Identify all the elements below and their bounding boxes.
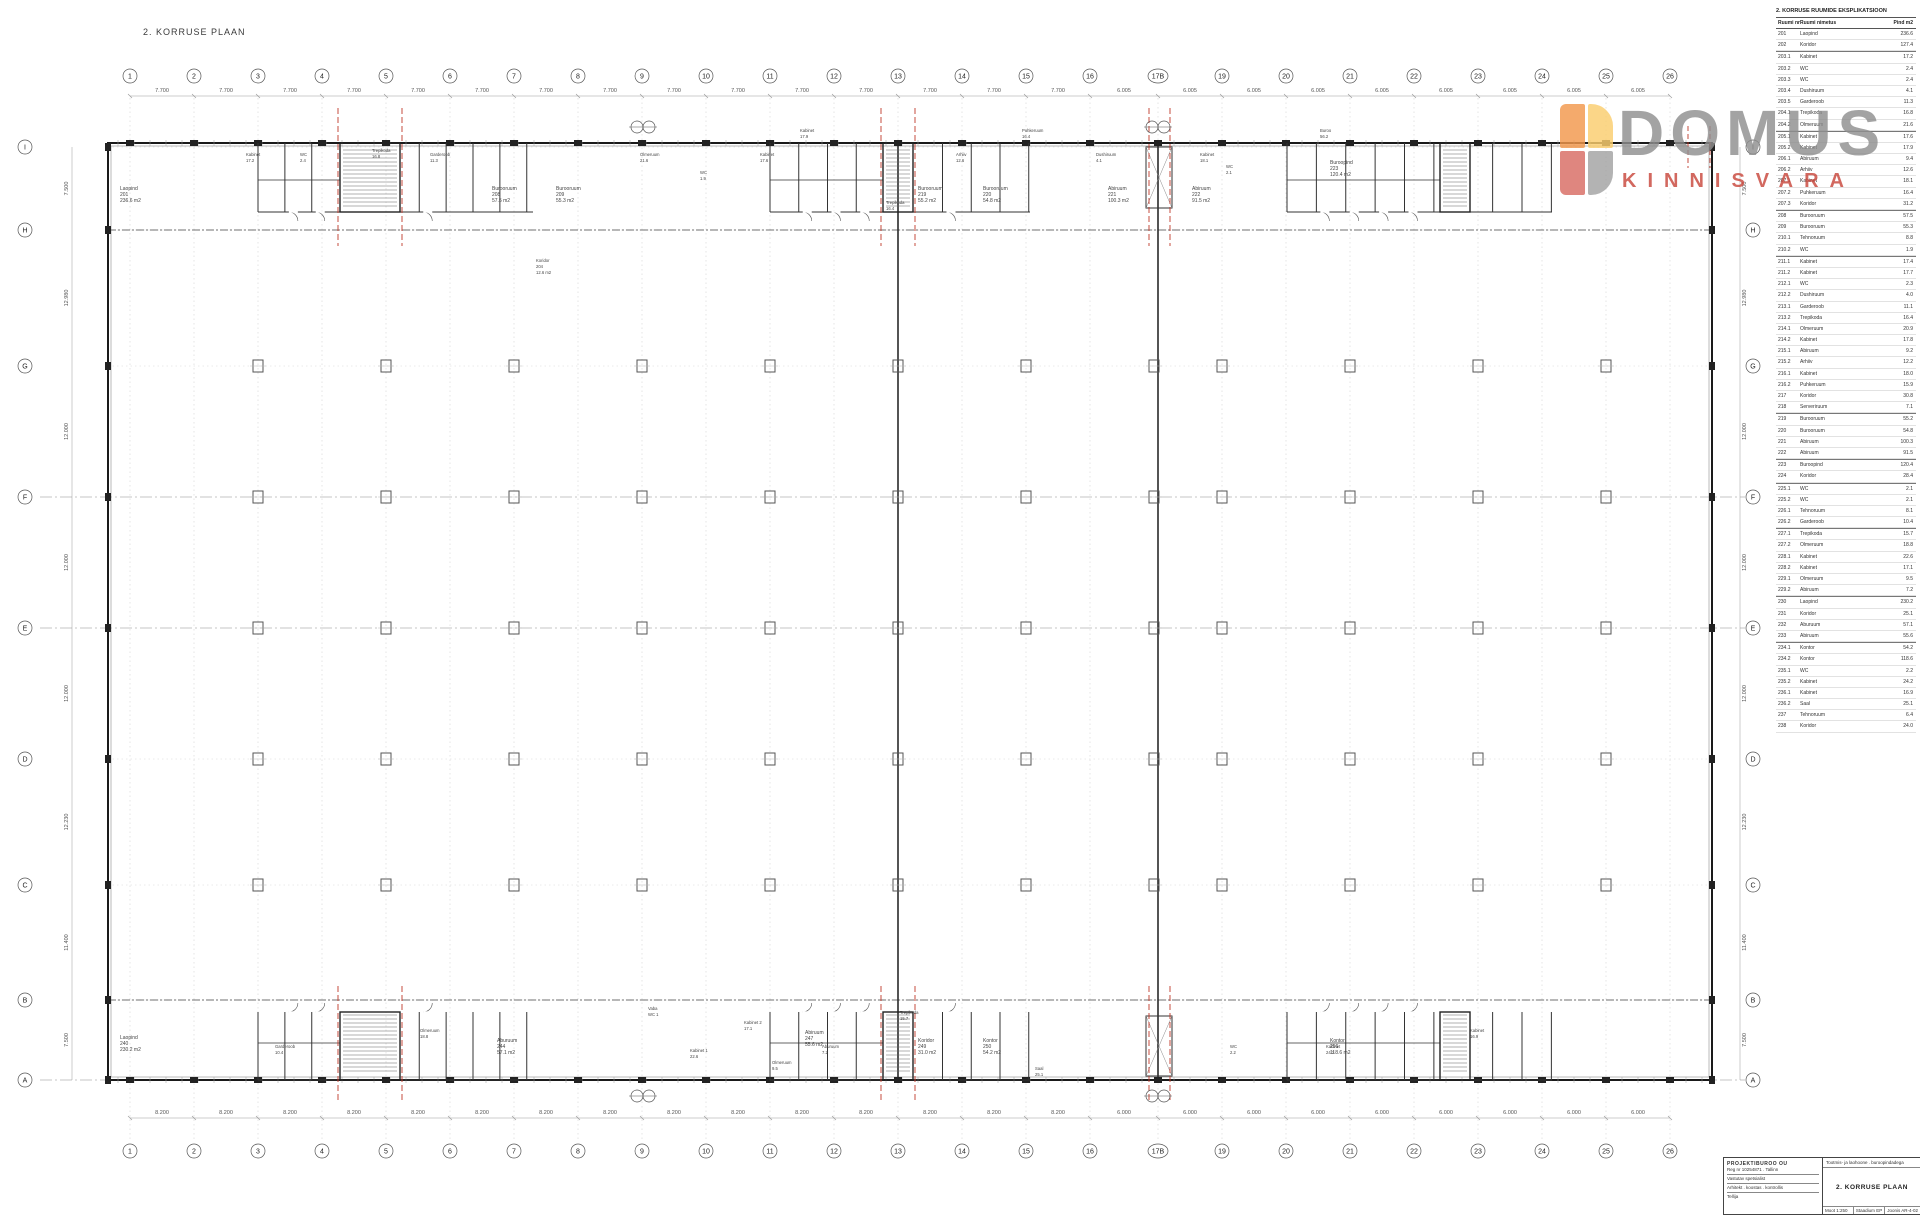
room-label-small: 16.8 — [372, 154, 380, 160]
room-label: Buroopind223120.4 m2 — [1330, 160, 1353, 178]
svg-text:8.200: 8.200 — [987, 1110, 1001, 1116]
svg-text:3: 3 — [256, 1148, 260, 1155]
drawing-title: 2. KORRUSE PLAAN — [1823, 1168, 1920, 1206]
table-row: 214.1Olmeruum20.9 — [1776, 324, 1916, 335]
svg-text:F: F — [23, 494, 27, 501]
svg-text:8.200: 8.200 — [283, 1110, 297, 1116]
title-block: PROJEKTIBUROO OU Reg nr 10254871 . Talli… — [1723, 1157, 1920, 1215]
logo-quad-red — [1560, 151, 1585, 195]
stage-cell: Staadium EP — [1854, 1207, 1885, 1214]
table-row: 224Koridor28.4 — [1776, 471, 1916, 482]
table-row: 217Koridor30.8 — [1776, 391, 1916, 402]
svg-text:6.000: 6.000 — [1183, 1110, 1197, 1116]
svg-text:11: 11 — [766, 73, 773, 80]
svg-text:1: 1 — [128, 1148, 132, 1155]
svg-text:6.005: 6.005 — [1375, 88, 1389, 94]
company-sub: Reg nr 10254871 . Tallinn — [1727, 1167, 1819, 1172]
svg-text:7.700: 7.700 — [859, 88, 873, 94]
svg-text:7.500: 7.500 — [64, 1033, 70, 1047]
svg-text:17B: 17B — [1152, 1148, 1165, 1155]
svg-text:8.200: 8.200 — [1051, 1110, 1065, 1116]
logo: DOMUS KINNISVARA — [1560, 104, 1890, 204]
room-label: Koridor24931.0 m2 — [918, 1038, 936, 1056]
svg-text:7.700: 7.700 — [411, 88, 425, 94]
table-row: 228.1Kabinet22.6 — [1776, 552, 1916, 563]
table-row: 219Burooruum55.2 — [1776, 413, 1916, 425]
svg-text:14: 14 — [958, 1148, 966, 1155]
svg-text:12.000: 12.000 — [64, 685, 70, 702]
table-row: 215.2Arhiiv12.2 — [1776, 357, 1916, 368]
table-row: 222Abiruum91.5 — [1776, 448, 1916, 459]
room-label-small: 1.9 — [700, 176, 706, 182]
svg-text:24: 24 — [1538, 73, 1546, 80]
svg-text:19: 19 — [1218, 1148, 1226, 1155]
room-label-small: 16.4 — [1022, 134, 1030, 140]
room-label: Aburuum24457.1 m2 — [497, 1038, 517, 1056]
svg-text:10: 10 — [702, 73, 710, 80]
svg-text:16: 16 — [1086, 73, 1094, 80]
room-label-small: 2.1 — [1226, 170, 1232, 176]
svg-text:6.000: 6.000 — [1247, 1110, 1261, 1116]
svg-text:12.000: 12.000 — [1742, 554, 1748, 571]
svg-text:12: 12 — [830, 1148, 838, 1155]
svg-text:6.005: 6.005 — [1567, 88, 1581, 94]
title-block-footer: Moot 1:250 Staadium EP Joonis AR-4-02 — [1823, 1206, 1920, 1214]
table-row: 227.2Olmeruum18.8 — [1776, 540, 1916, 551]
table-row: 221Abiruum100.3 — [1776, 437, 1916, 448]
svg-text:6.005: 6.005 — [1117, 88, 1131, 94]
svg-text:A: A — [1751, 1077, 1756, 1084]
room-label: Laopind240230.2 m2 — [120, 1035, 141, 1053]
schedule-header: Ruumi nr Ruumi nimetus Pind m2 — [1776, 17, 1916, 29]
tb-line3: Tellija — [1727, 1192, 1819, 1199]
svg-text:13: 13 — [894, 73, 902, 80]
tb-line1: Vastutav spetsialist — [1727, 1174, 1819, 1181]
svg-text:6.005: 6.005 — [1247, 88, 1261, 94]
svg-text:12.230: 12.230 — [64, 814, 70, 831]
svg-text:24: 24 — [1538, 1148, 1546, 1155]
svg-text:7.700: 7.700 — [347, 88, 361, 94]
logo-quad-gray — [1588, 151, 1613, 195]
svg-text:8.200: 8.200 — [859, 1110, 873, 1116]
svg-text:22: 22 — [1410, 73, 1418, 80]
svg-text:7.700: 7.700 — [923, 88, 937, 94]
table-row: 234.1Kontor54.2 — [1776, 642, 1916, 654]
room-label-small: 24.2 — [1326, 1050, 1334, 1056]
svg-text:6.000: 6.000 — [1117, 1110, 1131, 1116]
wall-pilasters — [105, 140, 1715, 1084]
svg-text:B: B — [23, 997, 28, 1004]
svg-text:22: 22 — [1410, 1148, 1418, 1155]
table-row: 234.2Kontor118.6 — [1776, 654, 1916, 665]
room-label-small: 17.1 — [744, 1026, 752, 1032]
table-row: 226.1Tehnoruum8.1 — [1776, 506, 1916, 517]
svg-text:7.500: 7.500 — [1742, 1033, 1748, 1047]
sheet-cell: Joonis AR-4-02 — [1885, 1207, 1920, 1214]
svg-text:9: 9 — [640, 1148, 644, 1155]
svg-text:6.000: 6.000 — [1439, 1110, 1453, 1116]
room-label-small: 25.1 — [1035, 1072, 1043, 1078]
office-clusters — [258, 143, 1552, 1080]
svg-text:25: 25 — [1602, 1148, 1610, 1155]
svg-text:8.200: 8.200 — [347, 1110, 361, 1116]
svg-text:F: F — [1751, 494, 1755, 501]
svg-text:12.000: 12.000 — [1742, 685, 1748, 702]
svg-text:8.200: 8.200 — [923, 1110, 937, 1116]
table-row: 213.2Trepikoda16.4 — [1776, 313, 1916, 324]
schedule-header-area: Pind m2 — [1887, 20, 1916, 26]
room-label-small: 10.4 — [275, 1050, 283, 1056]
room-label-small: 18.8 — [420, 1034, 428, 1040]
svg-text:5: 5 — [384, 1148, 388, 1155]
svg-text:E: E — [23, 625, 28, 632]
svg-text:G: G — [22, 363, 27, 370]
svg-text:H: H — [1750, 227, 1755, 234]
svg-text:6: 6 — [448, 73, 452, 80]
grid-bubbles: 1122334455667788991010111112121313141415… — [18, 69, 1760, 1158]
svg-text:6.005: 6.005 — [1503, 88, 1517, 94]
svg-text:12.000: 12.000 — [1742, 423, 1748, 440]
schedule-title: 2. KORRUSE RUUMIDE EKSPLIKATSIOON — [1776, 8, 1916, 14]
svg-text:A: A — [23, 1077, 28, 1084]
logo-subtitle: KINNISVARA — [1622, 170, 1855, 193]
room-label-small: 4.1 — [1096, 158, 1102, 164]
svg-text:13: 13 — [894, 1148, 902, 1155]
svg-text:6.000: 6.000 — [1375, 1110, 1389, 1116]
svg-text:12.000: 12.000 — [64, 554, 70, 571]
svg-text:2: 2 — [192, 1148, 196, 1155]
logo-quad-yellow — [1588, 104, 1613, 148]
svg-text:11.400: 11.400 — [1742, 934, 1748, 950]
svg-text:8: 8 — [576, 73, 580, 80]
svg-text:6.000: 6.000 — [1567, 1110, 1581, 1116]
svg-text:7.700: 7.700 — [667, 88, 681, 94]
svg-text:10: 10 — [702, 1148, 710, 1155]
section-marks — [629, 121, 1172, 1102]
table-row: 229.1Olmeruum9.5 — [1776, 574, 1916, 585]
svg-text:8.200: 8.200 — [219, 1110, 233, 1116]
project-name: Tootmis- ja laohoone . buroopindadega — [1823, 1158, 1920, 1168]
title-block-company-cell: PROJEKTIBUROO OU Reg nr 10254871 . Talli… — [1724, 1158, 1823, 1214]
table-row: 202Koridor127.4 — [1776, 40, 1916, 51]
svg-text:7.700: 7.700 — [539, 88, 553, 94]
table-row: 214.2Kabinet17.8 — [1776, 335, 1916, 346]
room-label-small: 21.6 — [640, 158, 648, 164]
table-row: 203.3WC2.4 — [1776, 75, 1916, 86]
svg-text:8.200: 8.200 — [539, 1110, 553, 1116]
svg-text:26: 26 — [1666, 1148, 1674, 1155]
table-row: 235.2Kabinet24.2 — [1776, 677, 1916, 688]
table-row: 203.2WC2.4 — [1776, 64, 1916, 75]
room-label-small: 18.1 — [1200, 158, 1208, 164]
svg-text:8.200: 8.200 — [795, 1110, 809, 1116]
room-label-small: 56.2 — [1320, 134, 1328, 140]
svg-text:1: 1 — [128, 73, 132, 80]
logo-quad-orange — [1560, 104, 1585, 148]
svg-text:7.700: 7.700 — [731, 88, 745, 94]
schedule-header-nr: Ruumi nr — [1776, 20, 1800, 26]
svg-text:20: 20 — [1282, 1148, 1290, 1155]
room-label: Kontor25054.2 m2 — [983, 1038, 1001, 1056]
svg-text:20: 20 — [1282, 73, 1290, 80]
room-label-small: 7.2 — [822, 1050, 828, 1056]
svg-text:21: 21 — [1346, 1148, 1354, 1155]
svg-text:17B: 17B — [1152, 73, 1165, 80]
svg-text:5: 5 — [384, 73, 388, 80]
svg-text:I: I — [24, 144, 26, 151]
svg-text:7.500: 7.500 — [64, 182, 70, 196]
table-row: 229.2Abiruum7.2 — [1776, 585, 1916, 596]
svg-text:D: D — [22, 756, 27, 763]
room-label: Abiruum221100.3 m2 — [1108, 186, 1129, 204]
svg-text:7.700: 7.700 — [987, 88, 1001, 94]
table-row: 216.2Puhkeruum15.9 — [1776, 380, 1916, 391]
svg-text:7.700: 7.700 — [1051, 88, 1065, 94]
table-row: 237Tehnoruum6.4 — [1776, 710, 1916, 721]
table-row: 220Burooruum54.8 — [1776, 426, 1916, 437]
svg-text:9: 9 — [640, 73, 644, 80]
table-row: 227.1Trepikoda15.7 — [1776, 528, 1916, 540]
svg-text:7.700: 7.700 — [475, 88, 489, 94]
svg-text:C: C — [1750, 882, 1755, 889]
room-label-small: 9.5 — [772, 1066, 778, 1072]
table-row: 231Koridor25.1 — [1776, 609, 1916, 620]
table-row: 203.1Kabinet17.2 — [1776, 51, 1916, 63]
table-row: 212.1WC2.3 — [1776, 279, 1916, 290]
svg-text:3: 3 — [256, 73, 260, 80]
svg-text:12: 12 — [830, 73, 838, 80]
table-row: 208Burooruum57.5 — [1776, 210, 1916, 222]
schedule-header-name: Ruumi nimetus — [1800, 20, 1887, 26]
window-ticks — [118, 140, 1702, 1083]
room-label-small: 17.2 — [246, 158, 254, 164]
scale-cell: Moot 1:250 — [1823, 1207, 1854, 1214]
table-row: 226.2Garderoob10.4 — [1776, 517, 1916, 528]
table-row: 211.1Kabinet17.4 — [1776, 256, 1916, 268]
svg-text:6.000: 6.000 — [1631, 1110, 1645, 1116]
svg-text:7: 7 — [512, 73, 516, 80]
hall-columns — [250, 360, 1614, 891]
svg-text:14: 14 — [958, 73, 966, 80]
table-row: 211.2Kabinet17.7 — [1776, 268, 1916, 279]
logo-wordmark: DOMUS — [1618, 96, 1886, 170]
room-label-small: 12.6 — [956, 158, 964, 164]
svg-text:6.000: 6.000 — [1503, 1110, 1517, 1116]
table-row: 225.2WC2.1 — [1776, 495, 1916, 506]
table-row: 209Burooruum55.3 — [1776, 222, 1916, 233]
svg-text:26: 26 — [1666, 73, 1674, 80]
svg-text:8.200: 8.200 — [411, 1110, 425, 1116]
room-label-small: 16.4 — [886, 206, 894, 212]
svg-text:21: 21 — [1346, 73, 1354, 80]
room-label-small: 17.6 — [760, 158, 768, 164]
tb-line2: Arhitekt . koostas . kontrollis — [1727, 1183, 1819, 1190]
svg-text:7.700: 7.700 — [219, 88, 233, 94]
table-row: 218Serveriruum7.1 — [1776, 402, 1916, 413]
svg-text:8.200: 8.200 — [475, 1110, 489, 1116]
room-label-small: 12.6 m2 — [536, 270, 551, 276]
room-label-small: 17.9 — [800, 134, 808, 140]
table-row: 236.2Saal25.1 — [1776, 699, 1916, 710]
svg-text:23: 23 — [1474, 73, 1482, 80]
room-label-small: 16.9 — [1470, 1034, 1478, 1040]
table-row: 238Koridor24.0 — [1776, 721, 1916, 732]
table-row: 210.1Tehnoruum8.8 — [1776, 233, 1916, 244]
svg-text:7.700: 7.700 — [795, 88, 809, 94]
room-label: Burooruum20857.5 m2 — [492, 186, 517, 204]
table-row: 223Buroopind120.4 — [1776, 459, 1916, 471]
svg-text:4: 4 — [320, 1148, 324, 1155]
svg-text:6.005: 6.005 — [1439, 88, 1453, 94]
table-row: 225.1WC2.1 — [1776, 483, 1916, 495]
table-row: 232Aburuum57.1 — [1776, 620, 1916, 631]
svg-text:6: 6 — [448, 1148, 452, 1155]
svg-text:23: 23 — [1474, 1148, 1482, 1155]
svg-text:6.000: 6.000 — [1311, 1110, 1325, 1116]
table-row: 235.1WC2.2 — [1776, 666, 1916, 677]
svg-text:12.980: 12.980 — [1742, 290, 1748, 307]
svg-text:7: 7 — [512, 1148, 516, 1155]
room-label: Burooruum21955.2 m2 — [918, 186, 943, 204]
svg-text:C: C — [22, 882, 27, 889]
svg-text:12.980: 12.980 — [64, 290, 70, 307]
svg-text:16: 16 — [1086, 1148, 1094, 1155]
svg-text:8.200: 8.200 — [731, 1110, 745, 1116]
svg-text:D: D — [1750, 756, 1755, 763]
room-label-small: 15.7 — [900, 1016, 908, 1022]
svg-text:11.400: 11.400 — [64, 934, 70, 950]
drawing-sheet: 2. KORRUSE PLAAN 11223344556677889910101… — [0, 0, 1920, 1217]
svg-text:B: B — [1751, 997, 1756, 1004]
room-label: Burooruum20955.3 m2 — [556, 186, 581, 204]
building-walls — [108, 143, 1712, 1080]
room-label-small: 2.2 — [1230, 1050, 1236, 1056]
svg-text:6.005: 6.005 — [1183, 88, 1197, 94]
svg-text:4: 4 — [320, 73, 324, 80]
svg-text:7.700: 7.700 — [283, 88, 297, 94]
svg-text:12.000: 12.000 — [64, 423, 70, 440]
svg-text:7.700: 7.700 — [603, 88, 617, 94]
table-row: 236.1Kabinet16.9 — [1776, 688, 1916, 699]
table-row: 212.2Dushiruum4.0 — [1776, 290, 1916, 301]
svg-text:6.005: 6.005 — [1631, 88, 1645, 94]
table-row: 216.1Kabinet18.0 — [1776, 369, 1916, 380]
room-label-small: 22.6 — [690, 1054, 698, 1060]
svg-text:15: 15 — [1022, 1148, 1030, 1155]
svg-text:25: 25 — [1602, 73, 1610, 80]
svg-text:2: 2 — [192, 73, 196, 80]
room-label: Burooruum22054.8 m2 — [983, 186, 1008, 204]
table-row: 213.1Garderoob11.1 — [1776, 302, 1916, 313]
svg-text:6.005: 6.005 — [1311, 88, 1325, 94]
room-label-small: 2.4 — [300, 158, 306, 164]
svg-text:19: 19 — [1218, 73, 1226, 80]
svg-text:8.200: 8.200 — [155, 1110, 169, 1116]
table-row: 233Abiruum55.6 — [1776, 631, 1916, 642]
svg-text:12.230: 12.230 — [1742, 814, 1748, 831]
grid-lines — [40, 98, 1745, 1142]
table-row: 215.1Abiruum9.2 — [1776, 346, 1916, 357]
room-label: Abiruum24755.6 m2 — [805, 1030, 824, 1048]
room-label-small: 11.3 — [430, 158, 438, 164]
svg-text:7.700: 7.700 — [155, 88, 169, 94]
svg-text:H: H — [22, 227, 27, 234]
dimension-lines: 7.7008.2007.7008.2007.7008.2007.7008.200… — [64, 88, 1748, 1120]
table-row: 201Laopind236.6 — [1776, 29, 1916, 40]
svg-text:G: G — [1750, 363, 1755, 370]
room-label: Abiruum22291.5 m2 — [1192, 186, 1211, 204]
svg-text:8.200: 8.200 — [603, 1110, 617, 1116]
room-label: Laopind201236.6 m2 — [120, 186, 141, 204]
table-row: 228.2Kabinet17.1 — [1776, 563, 1916, 574]
svg-text:15: 15 — [1022, 73, 1030, 80]
svg-text:8: 8 — [576, 1148, 580, 1155]
room-label-small: WC 1 — [648, 1012, 658, 1018]
table-row: 210.2WC1.9 — [1776, 245, 1916, 256]
svg-text:11: 11 — [766, 1148, 773, 1155]
svg-text:E: E — [1751, 625, 1756, 632]
svg-text:8.200: 8.200 — [667, 1110, 681, 1116]
title-block-drawing-cell: Tootmis- ja laohoone . buroopindadega 2.… — [1823, 1158, 1920, 1214]
table-row: 230Laopind230.2 — [1776, 596, 1916, 608]
